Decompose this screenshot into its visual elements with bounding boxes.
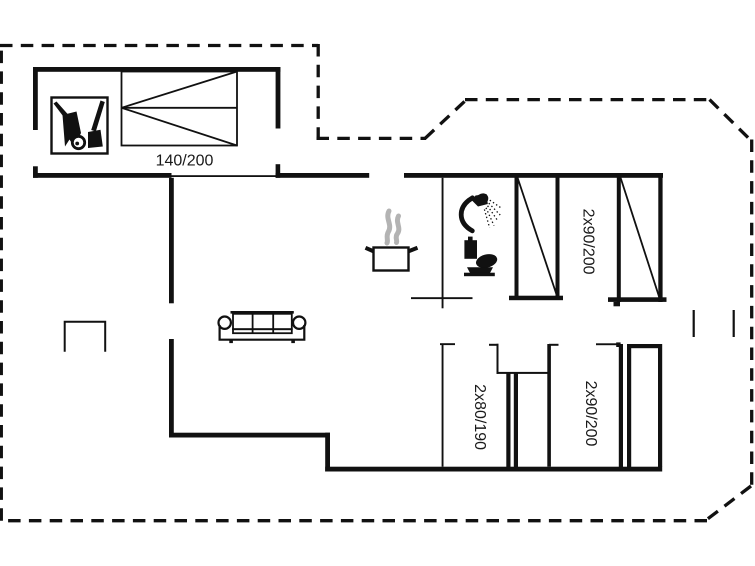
svg-text:140/200: 140/200 bbox=[156, 153, 214, 170]
svg-text:2x90/200: 2x90/200 bbox=[582, 381, 599, 447]
svg-text:2x80/190: 2x80/190 bbox=[471, 384, 488, 450]
svg-text:2x90/200: 2x90/200 bbox=[580, 209, 597, 275]
